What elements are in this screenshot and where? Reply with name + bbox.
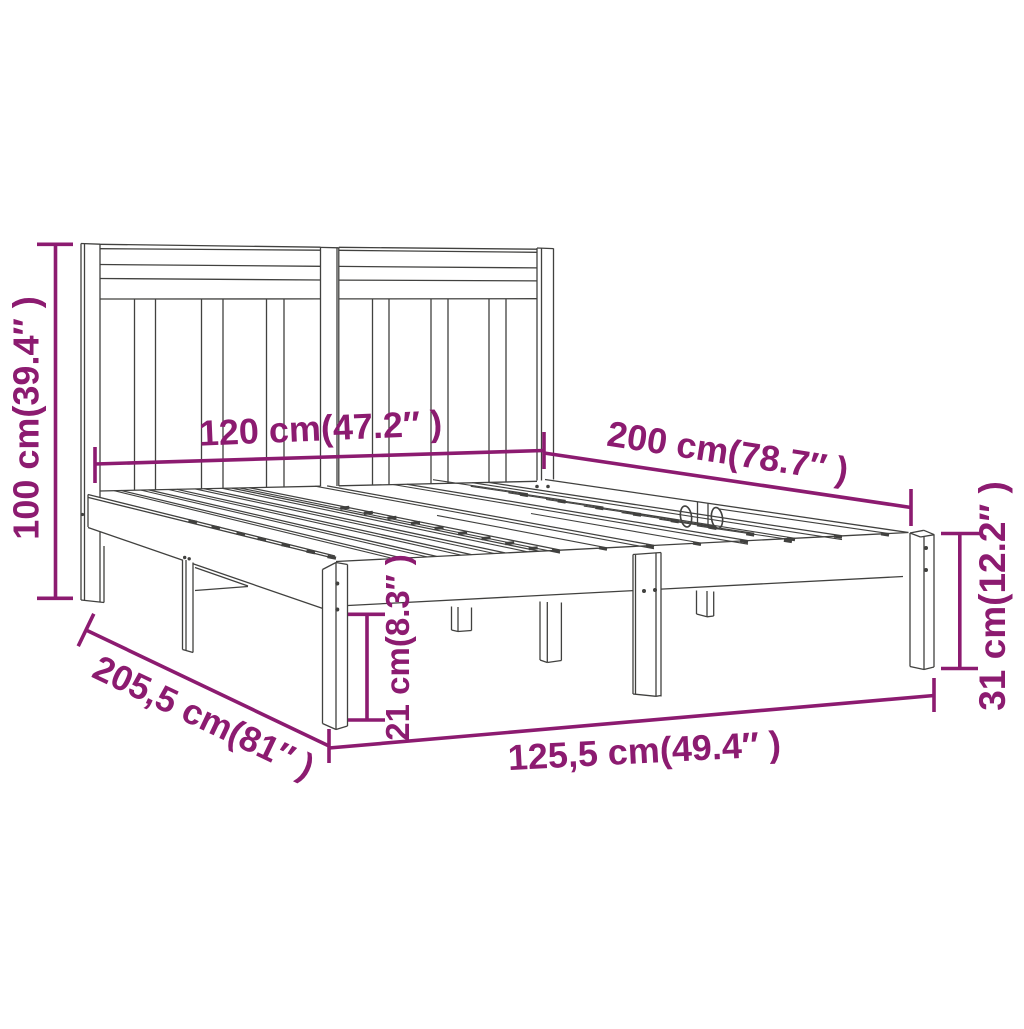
svg-text:31 cm(12.2″ ): 31 cm(12.2″ ) (972, 481, 1013, 711)
svg-text:100 cm(39.4″ ): 100 cm(39.4″ ) (6, 296, 47, 539)
svg-text:21 cm(8.3″ ): 21 cm(8.3″ ) (379, 554, 416, 740)
